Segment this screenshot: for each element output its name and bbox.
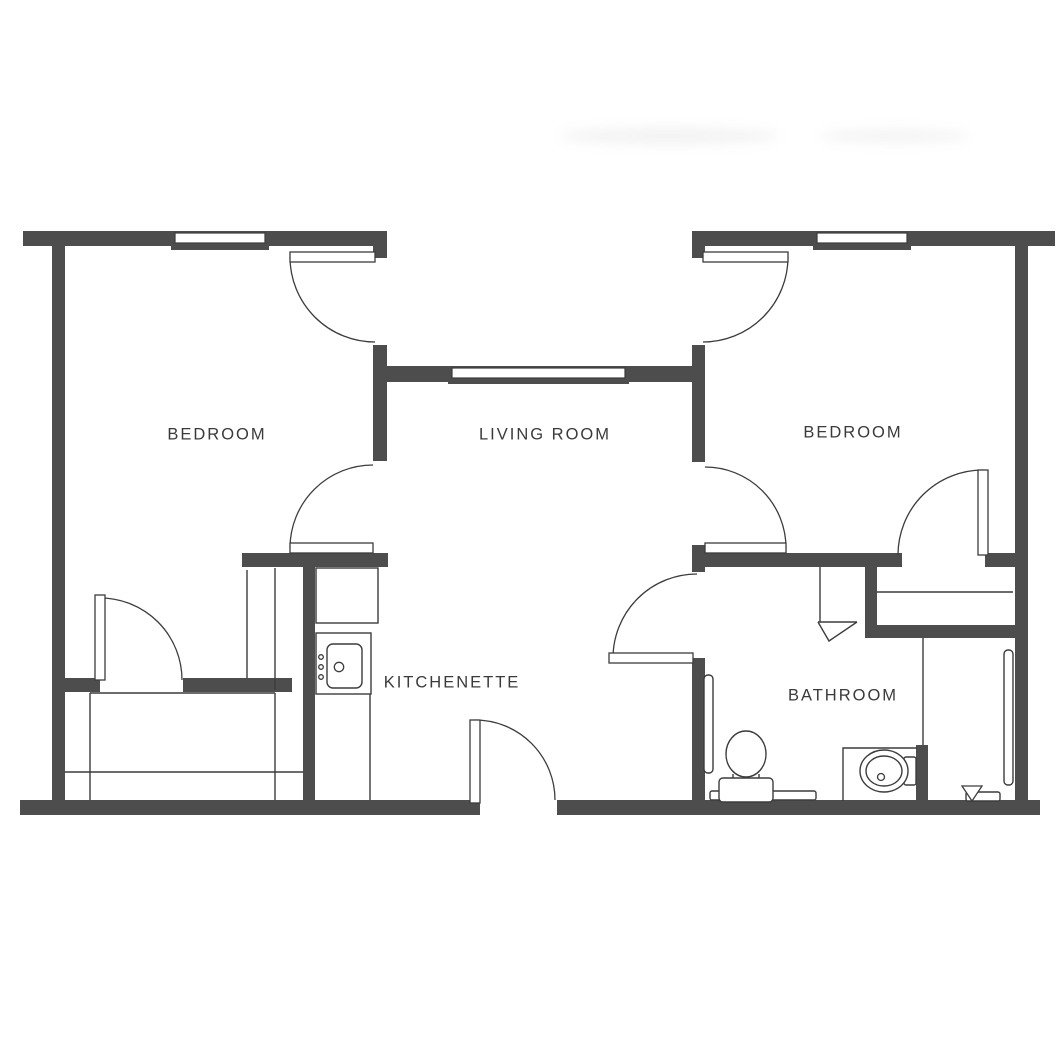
refrigerator	[316, 568, 378, 623]
bedroom-left-entry-door-leaf	[290, 252, 375, 262]
outer-wall-bottom-right	[557, 800, 1040, 815]
living-room-window-sill	[448, 378, 629, 384]
bedroom-right-closet-door-leaf	[978, 470, 988, 555]
bedroom-left-closet-door-swing-arc	[100, 598, 182, 680]
kitchenette-wall	[303, 553, 315, 803]
kitchen-sink-drain	[334, 662, 343, 671]
bedroom-right-bottom-wall	[705, 553, 902, 567]
bedroom-left-window-sill	[171, 244, 269, 250]
bedroom-left-closet-door-leaf	[95, 595, 105, 680]
living-to-bedroom-left-door-leaf	[290, 543, 373, 553]
toilet-tank	[719, 778, 773, 802]
bedroom-right-bottom-wall-end	[985, 553, 1015, 567]
divider-right-upper	[692, 345, 705, 462]
toilet-bowl	[726, 731, 766, 777]
vanity-partition-stub	[916, 745, 928, 803]
living-room-window	[452, 368, 625, 378]
room-label-living-room: LIVING ROOM	[479, 426, 611, 445]
bedroom-left-entry-door-swing-arc	[290, 257, 375, 342]
outer-wall-right	[1015, 246, 1028, 803]
bathroom-west-wall	[692, 658, 705, 803]
bedroom-right-window	[817, 233, 907, 243]
bedroom-left-window	[175, 233, 265, 243]
living-to-bedroom-right-door-leaf	[705, 543, 786, 553]
bathroom-door-leaf	[609, 653, 693, 663]
linen-nook-flap	[818, 622, 857, 641]
floor-plan-svg	[0, 0, 1064, 1064]
divider-right-middle	[692, 545, 705, 572]
divider-left-upper	[373, 345, 387, 461]
living-to-bedroom-right-door-swing-arc	[705, 467, 786, 548]
bathroom-door-swing-arc	[613, 574, 697, 658]
bedroom-right-window-sill	[813, 244, 911, 250]
floor-plan-page: BEDROOM LIVING ROOM BEDROOM KITCHENETTE …	[0, 0, 1064, 1064]
kitchen-sink-basin	[327, 644, 362, 688]
towel-bar-left	[704, 675, 713, 773]
stove-knob-1	[319, 655, 324, 660]
stove-knob-3	[319, 675, 324, 680]
room-label-bedroom-left: BEDROOM	[167, 426, 266, 445]
room-label-bedroom-right: BEDROOM	[803, 424, 902, 443]
closet-zone-wall-stub	[52, 678, 100, 692]
bedroom-right-closet-door-swing-arc	[898, 470, 983, 555]
towel-bar-right	[1004, 650, 1013, 785]
closet-right-bottom-wall	[865, 625, 1017, 638]
living-to-bedroom-left-door-swing-arc	[290, 465, 373, 548]
main-entry-door-leaf	[470, 720, 480, 803]
stove-knob-2	[319, 665, 324, 670]
outer-wall-left	[52, 246, 65, 803]
bedroom-right-entry-door-leaf	[703, 252, 788, 262]
bedroom-right-entry-door-swing-arc	[703, 257, 788, 342]
bathroom-sink-drain	[878, 774, 885, 781]
outer-wall-bottom-left	[20, 800, 480, 815]
main-entry-door-swing-arc	[475, 720, 555, 800]
bathroom-sink-inner	[866, 756, 902, 786]
room-label-bathroom: BATHROOM	[788, 687, 898, 706]
room-label-kitchenette: KITCHENETTE	[384, 674, 521, 693]
